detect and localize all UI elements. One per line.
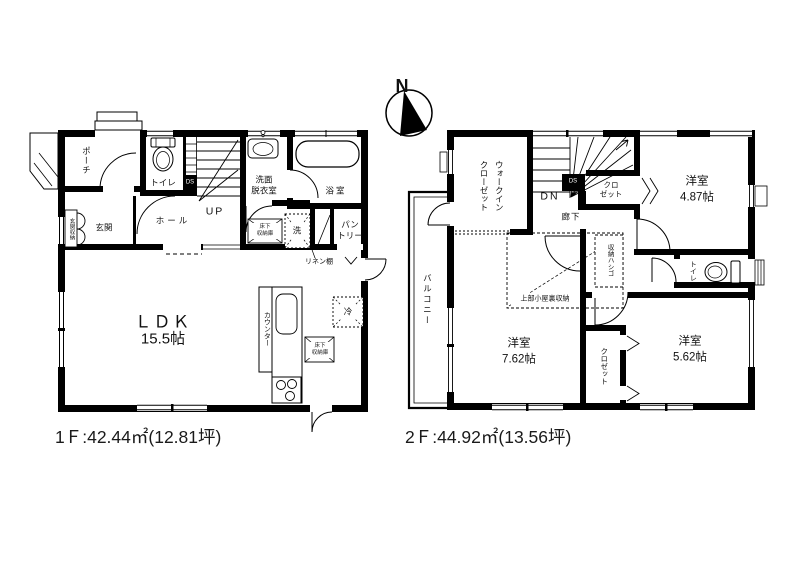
- entrance-storage-box: [65, 210, 77, 247]
- washer-box: [285, 214, 310, 248]
- toilet-icon-2f: [705, 261, 740, 283]
- toilet2-window-bay: [755, 260, 764, 285]
- wic-window-bay: [440, 152, 447, 172]
- bathtub-icon: [296, 141, 359, 167]
- toilet-icon-1f: [151, 138, 175, 171]
- storage-ladder-box: [595, 235, 623, 287]
- underfloor-storage-hall: [248, 219, 282, 243]
- underfloor-storage-kitchen: [305, 337, 334, 362]
- entrance-steps: [97, 112, 137, 121]
- floorplan-canvas: ポーチ トイレ DS 洗面 脱衣室 浴室 玄関収納 玄関 ホール UP 床下 収…: [0, 0, 800, 565]
- fridge-box: [333, 297, 363, 327]
- floorplan-svg: [0, 0, 800, 565]
- floor2-area-label: 2Ｆ:44.92㎡(13.56坪): [405, 424, 571, 449]
- bedroom1-window-bay: [755, 186, 767, 206]
- floor2-plan: [409, 130, 767, 411]
- floor1-plan: [30, 112, 386, 432]
- floor1-area-label: 1Ｆ:42.44㎡(12.81坪): [55, 424, 221, 449]
